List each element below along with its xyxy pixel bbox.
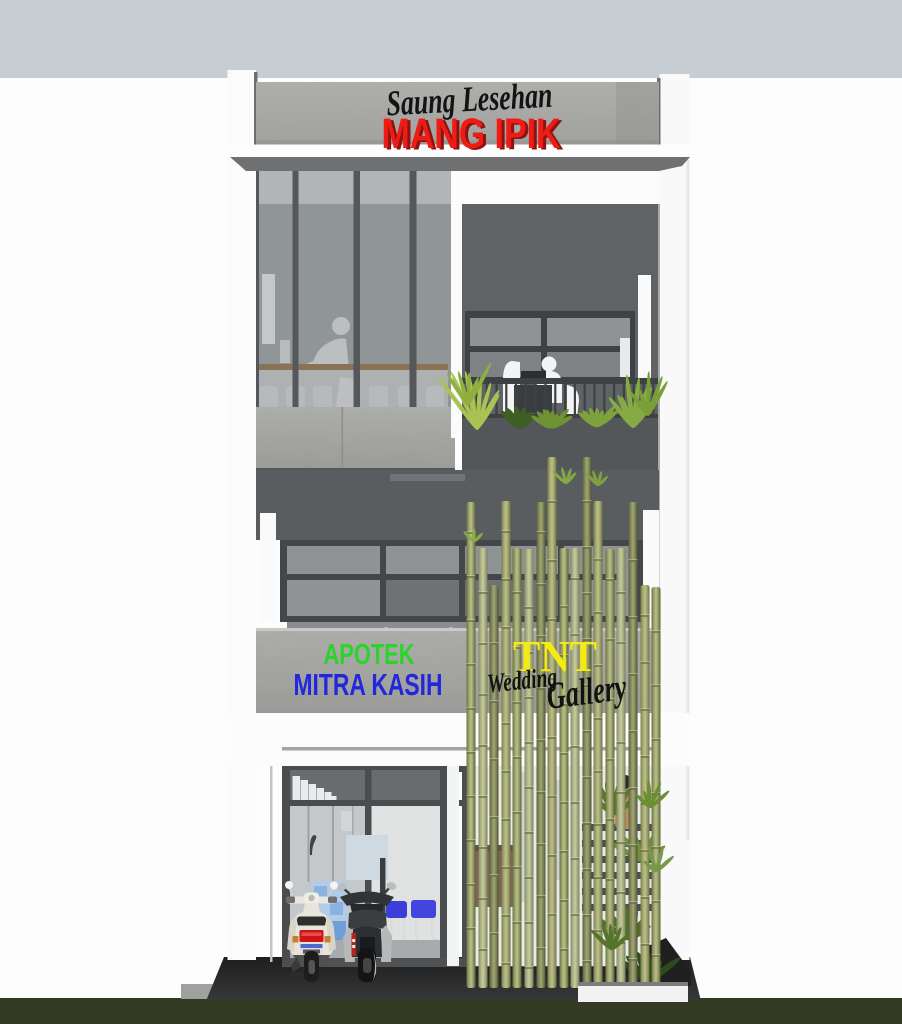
svg-text:MITRA KASIH: MITRA KASIH (294, 667, 443, 702)
svg-text:MANG IPIK: MANG IPIK (382, 110, 561, 158)
